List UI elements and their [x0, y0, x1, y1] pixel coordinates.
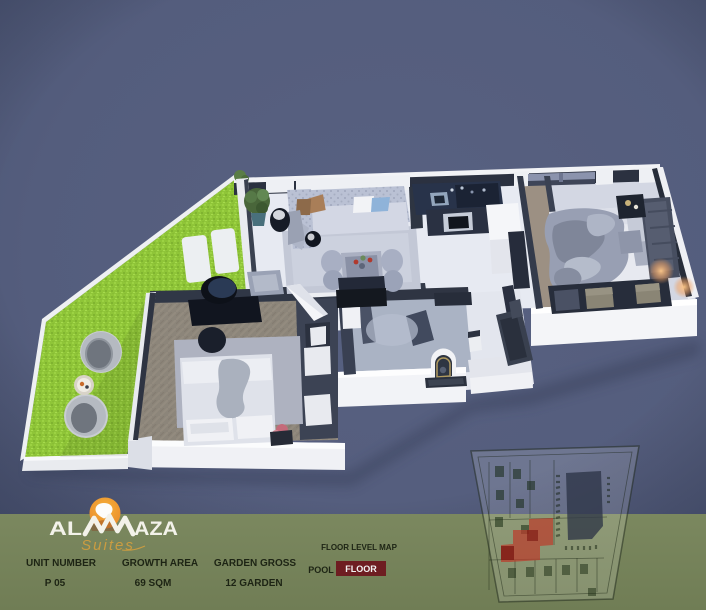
svg-text:69 SQM: 69 SQM — [135, 578, 172, 589]
svg-text:GARDEN GROSS: GARDEN GROSS — [214, 558, 297, 569]
svg-text:POOL: POOL — [308, 565, 334, 575]
svg-text:UNIT NUMBER: UNIT NUMBER — [26, 558, 97, 569]
svg-text:12 GARDEN: 12 GARDEN — [225, 578, 282, 589]
svg-text:FLOOR: FLOOR — [345, 564, 377, 574]
svg-text:Suites: Suites — [81, 537, 135, 554]
svg-text:FLOOR LEVEL MAP: FLOOR LEVEL MAP — [321, 543, 398, 552]
svg-text:P 05: P 05 — [45, 578, 66, 589]
svg-text:AL: AL — [49, 519, 83, 540]
svg-text:GROWTH AREA: GROWTH AREA — [122, 558, 198, 569]
svg-text:AZA: AZA — [134, 519, 178, 540]
